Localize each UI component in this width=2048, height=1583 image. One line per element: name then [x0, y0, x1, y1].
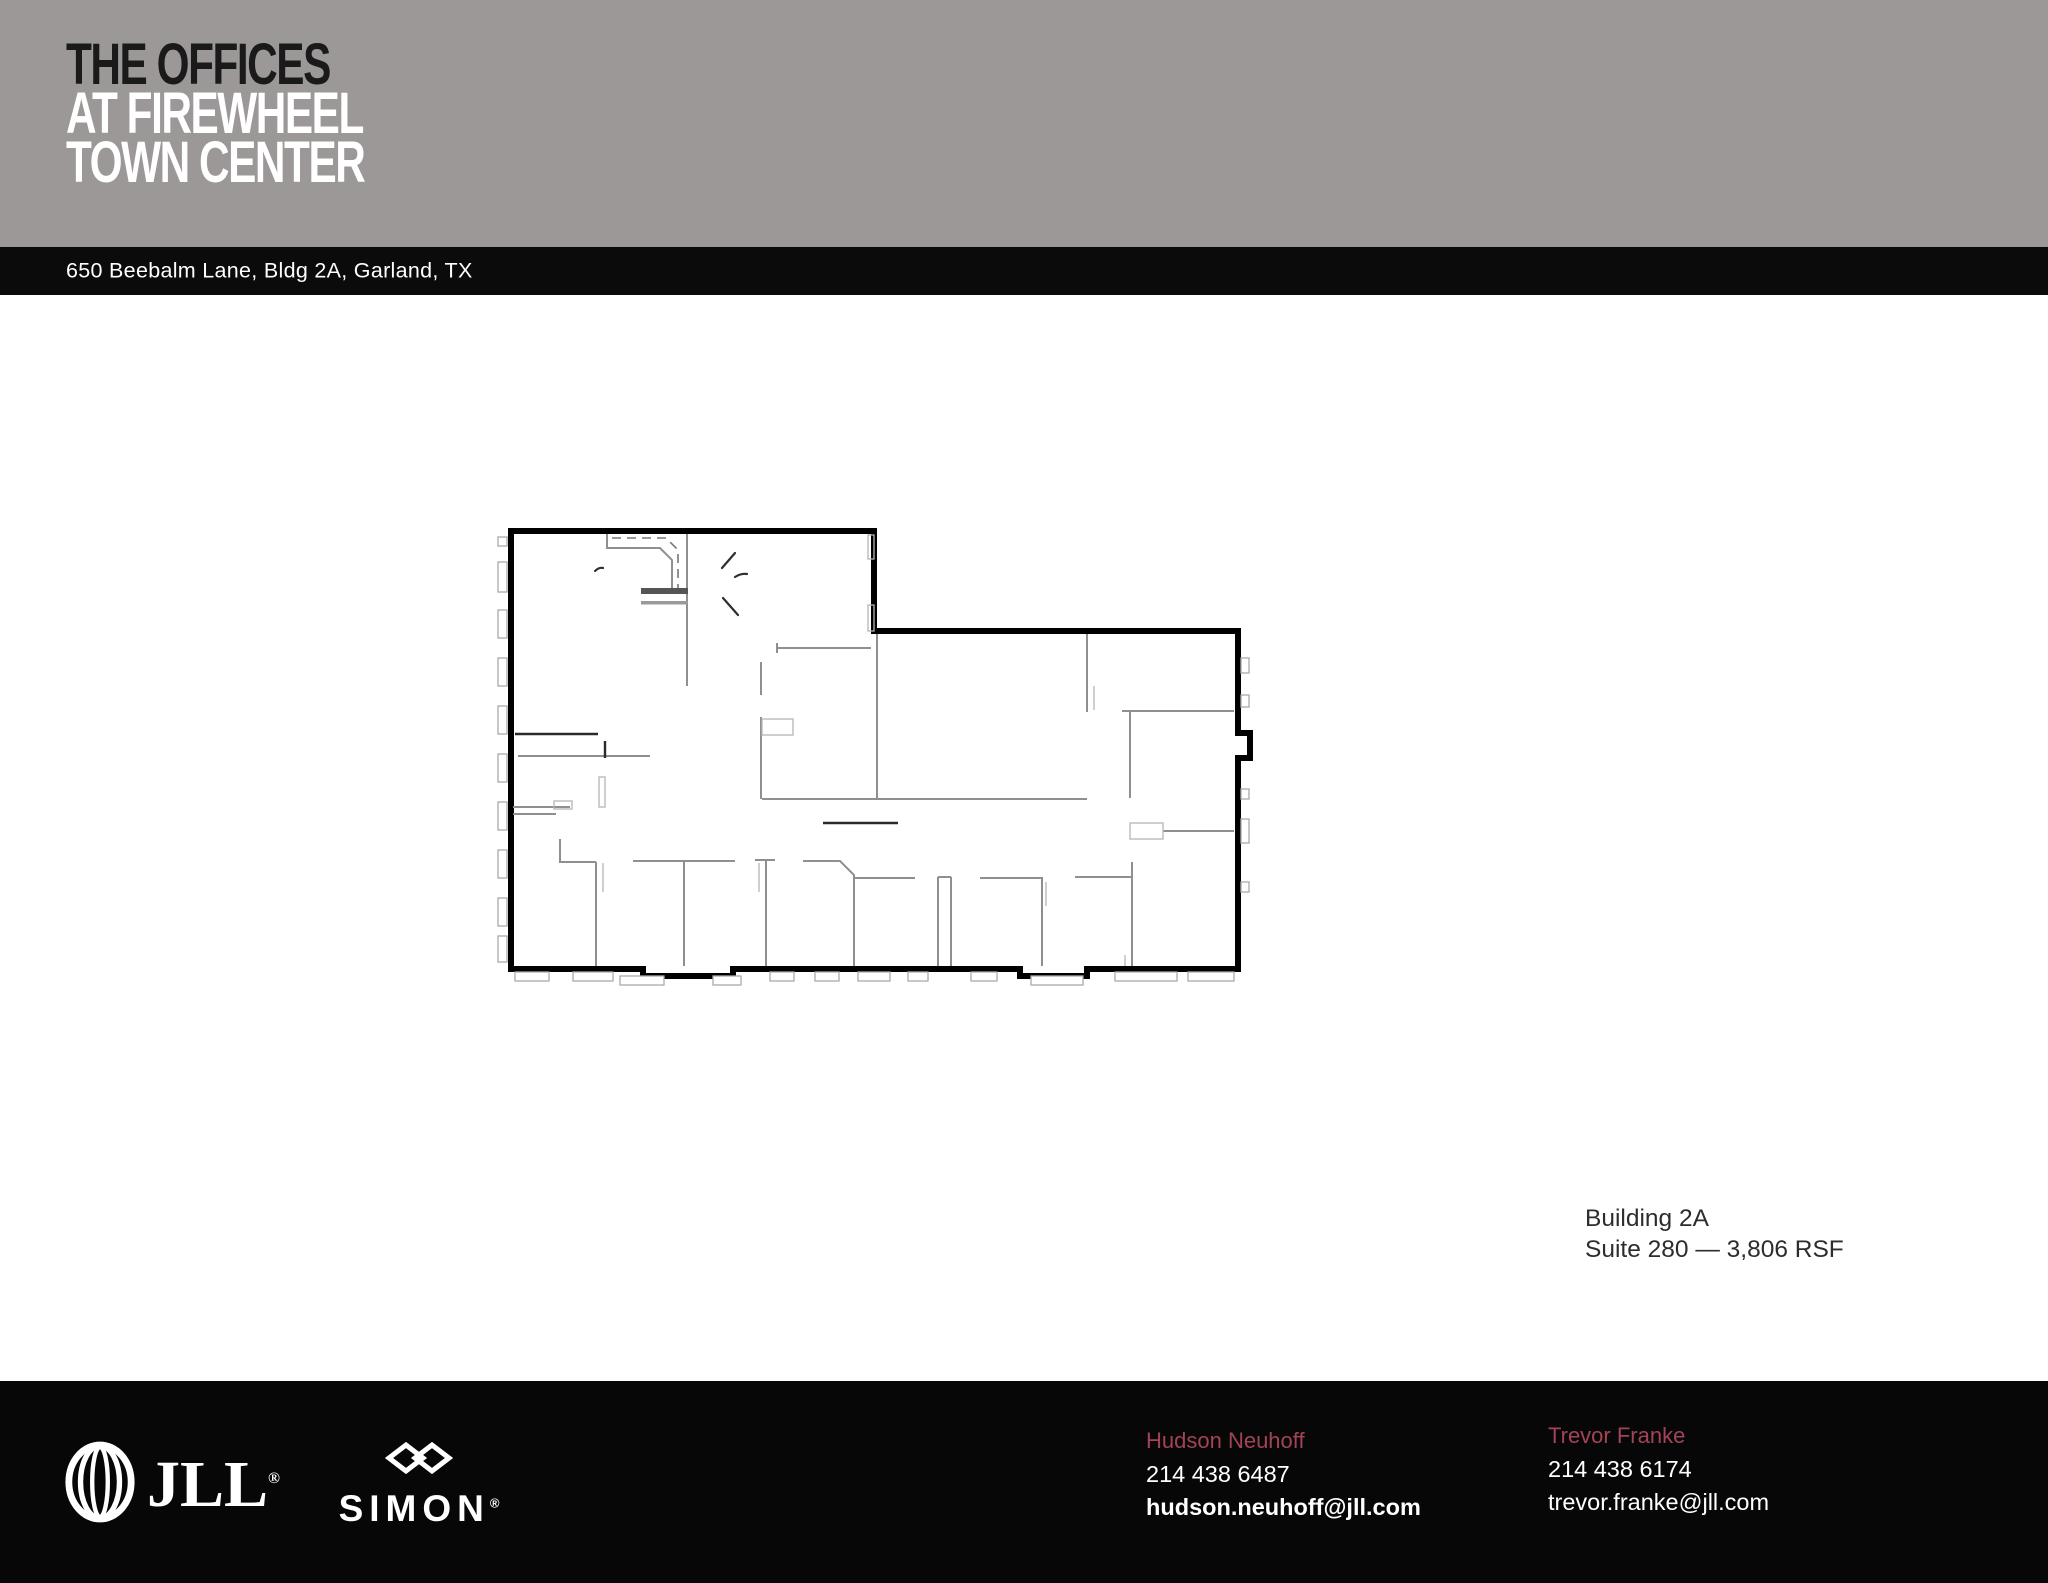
- simon-logo: SIMON®: [330, 1442, 508, 1530]
- jll-registered-mark: ®: [268, 1470, 280, 1487]
- jll-wordmark: JLL®: [147, 1441, 280, 1523]
- contact-email[interactable]: trevor.franke@jll.com: [1548, 1489, 1769, 1516]
- suite-outline: [511, 531, 1250, 976]
- jll-logo: JLL®: [63, 1441, 280, 1523]
- contact-name: Hudson Neuhoff: [1146, 1428, 1421, 1454]
- suite-label: Building 2A Suite 280 — 3,806 RSF: [1585, 1203, 1844, 1265]
- flyer-page: THE OFFICES AT FIREWHEEL TOWN CENTER 650…: [0, 0, 2048, 1583]
- simon-registered-mark: ®: [490, 1496, 500, 1511]
- jll-globe-icon: [63, 1441, 137, 1523]
- simon-wordmark: SIMON®: [330, 1488, 508, 1530]
- contact-phone: 214 438 6487: [1146, 1461, 1421, 1488]
- simon-infinity-icon: [385, 1442, 453, 1474]
- contact-card-hudson: Hudson Neuhoff 214 438 6487 hudson.neuho…: [1146, 1428, 1421, 1521]
- suite-label-building: Building 2A: [1585, 1203, 1844, 1234]
- contact-email[interactable]: hudson.neuhoff@jll.com: [1146, 1494, 1421, 1521]
- footer-band: JLL® SIMON® Hudson Neuhoff 214 438 6487 …: [0, 1381, 2048, 1583]
- contact-card-trevor: Trevor Franke 214 438 6174 trevor.franke…: [1548, 1423, 1769, 1516]
- floor-plan: [0, 0, 2048, 1583]
- suite-label-size: Suite 280 — 3,806 RSF: [1585, 1234, 1844, 1265]
- contact-name: Trevor Franke: [1548, 1423, 1769, 1449]
- contact-phone: 214 438 6174: [1548, 1456, 1769, 1483]
